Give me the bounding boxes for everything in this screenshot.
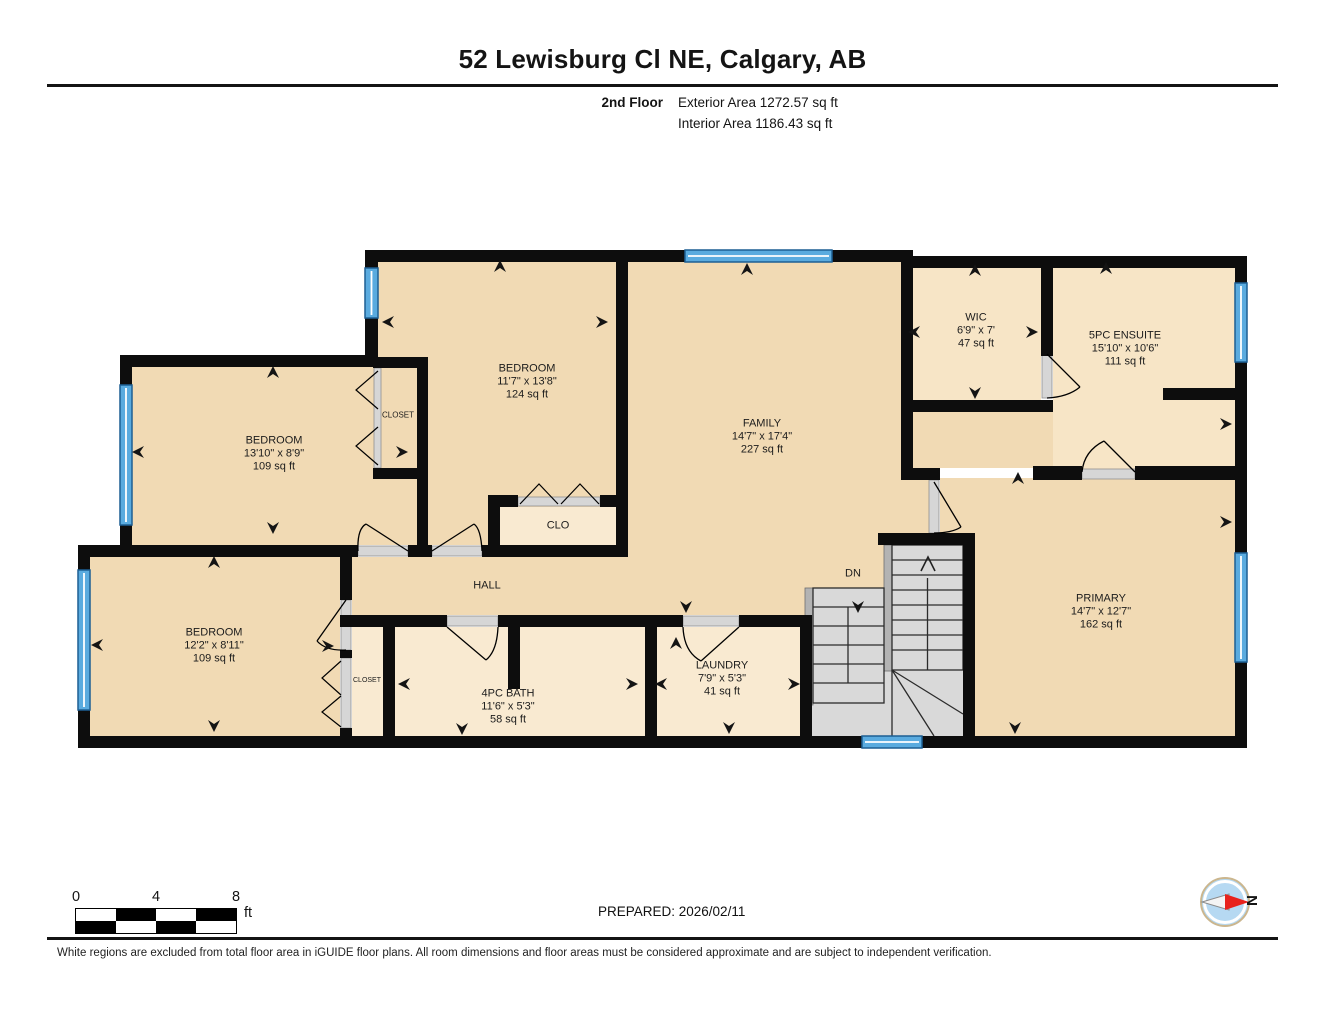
floor-plan-page: { "header": { "title": "52 Lewisburg Cl … [0, 0, 1325, 1024]
room-label-ensuite: 5PC ENSUITE 15'10" x 10'6" 111 sq ft [1089, 330, 1161, 369]
scale-bar [75, 908, 237, 934]
room-floors [90, 262, 1235, 736]
room-label-bath: 4PC BATH 11'6" x 5'3" 58 sq ft [481, 688, 534, 727]
disclaimer-text: White regions are excluded from total fl… [57, 947, 992, 959]
room-label-clo: CLO [547, 520, 570, 533]
compass-icon [1196, 874, 1281, 930]
scale-unit: ft [244, 905, 252, 921]
footer-divider [47, 937, 1278, 940]
scale-tick-8: 8 [232, 889, 240, 905]
room-label-bedroom-3: BEDROOM 12'2" x 8'11" 109 sq ft [184, 627, 244, 666]
scale-tick-0: 0 [72, 889, 80, 905]
room-label-primary: PRIMARY 14'7" x 12'7" 162 sq ft [1071, 593, 1131, 632]
compass-north-label: N [1243, 895, 1260, 906]
prepared-date: PREPARED: 2026/02/11 [598, 904, 745, 919]
room-label-bedroom-1: BEDROOM 13'10" x 8'9" 109 sq ft [244, 435, 304, 474]
room-label-bedroom-2: BEDROOM 11'7" x 13'8" 124 sq ft [497, 363, 557, 402]
room-label-family: FAMILY 14'7" x 17'4" 227 sq ft [732, 418, 792, 457]
room-label-closet-top: CLOSET [382, 411, 414, 420]
stairs-dn-label: DN [845, 568, 861, 581]
room-label-hall: HALL [473, 580, 501, 593]
room-label-laundry: LAUNDRY 7'9" x 5'3" 41 sq ft [696, 660, 748, 699]
room-label-closet-bottom: CLOSET [353, 677, 381, 685]
floor-plan-drawing [0, 0, 1325, 1024]
scale-tick-4: 4 [152, 889, 160, 905]
room-label-wic: WIC 6'9" x 7' 47 sq ft [957, 312, 995, 351]
